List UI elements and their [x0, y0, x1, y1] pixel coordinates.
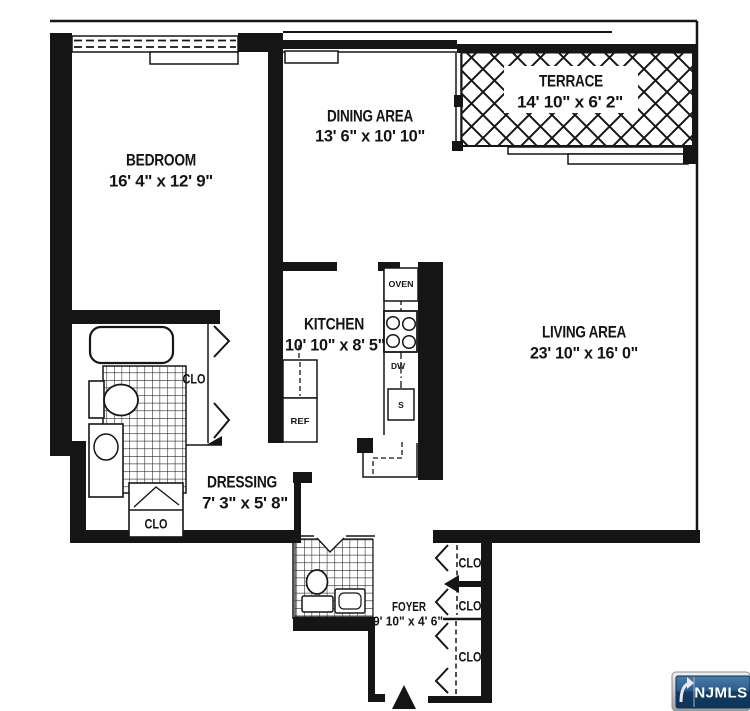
toilet-bowl	[307, 570, 328, 594]
powder-room	[293, 536, 375, 619]
oven-label: OVEN	[389, 279, 414, 289]
living-window-sill2	[568, 154, 688, 164]
wall-terrace-west-block	[454, 95, 463, 107]
wall-foyer-closet-east	[481, 530, 492, 703]
wall-kitchen-west	[268, 33, 283, 443]
dishwasher-label: DW	[391, 361, 406, 371]
kitchen-dims: 10' 10" x 8' 5"	[285, 336, 385, 355]
wall-bedroom-south	[63, 310, 220, 324]
bedroom-label: BEDROOM	[126, 151, 196, 170]
bedroom-convector	[150, 52, 238, 64]
kitchen-label: KITCHEN	[304, 315, 364, 334]
dressing-dims: 7' 3" x 5' 8"	[202, 494, 288, 513]
njmls-badge: NJMLS	[672, 672, 750, 711]
closet-divider-bar	[456, 581, 481, 587]
bedroom-closet-label: CLO	[183, 372, 206, 387]
wall-dining-north	[283, 40, 457, 49]
wall-foyer-south	[428, 696, 488, 703]
wall-terrace-north	[457, 44, 697, 53]
wall-stub-kitchen-sw	[293, 472, 312, 483]
window-frame	[72, 36, 238, 52]
foyer-dims: 9' 10" x 4' 6"	[373, 614, 443, 629]
terrace-label: TERRACE	[539, 72, 603, 91]
refrigerator-label: REF	[291, 416, 310, 426]
foyer-closet2-label: CLO	[459, 599, 482, 614]
badge-label: NJMLS	[694, 685, 747, 702]
wall-dressing-east	[294, 483, 301, 540]
dressing-label: DRESSING	[207, 473, 277, 492]
wall-foyer-west-stub	[368, 694, 385, 702]
wall-powder-south	[293, 617, 375, 631]
living-label: LIVING AREA	[542, 323, 626, 342]
wall-dressing-south	[70, 530, 301, 543]
dining-dims: 13' 6" x 10' 10"	[315, 127, 425, 146]
floor-plan: BEDROOM 16' 4" x 12' 9" DINING AREA 13' …	[0, 0, 750, 711]
toilet-tank	[302, 596, 333, 612]
toilet-bowl	[104, 385, 138, 416]
sink-label: S	[398, 400, 404, 410]
bedroom-dims: 16' 4" x 12' 9"	[109, 172, 213, 191]
dining-label: DINING AREA	[327, 107, 413, 126]
foyer-label: FOYER	[392, 600, 426, 614]
wall-living-south	[433, 530, 700, 543]
floor-plan-page: BEDROOM 16' 4" x 12' 9" DINING AREA 13' …	[0, 0, 750, 711]
bathtub	[90, 327, 173, 363]
wall-kitchen-pier	[357, 438, 373, 453]
terrace-dims: 14' 10" x 6' 2"	[517, 93, 623, 112]
foyer-closet1-label: CLO	[459, 556, 482, 571]
wall-west-step	[50, 441, 86, 456]
wall-kitchen-east-pillar	[418, 262, 443, 480]
sink-basin	[94, 434, 118, 460]
toilet-tank	[89, 381, 104, 418]
wall-kitchen-north-left	[283, 262, 337, 271]
wall-foyer-west	[368, 631, 375, 698]
foyer-closet3-label: CLO	[459, 650, 482, 665]
wall-west-lower	[70, 455, 86, 543]
dining-convector	[285, 51, 338, 63]
wall-window-band-block	[683, 146, 698, 164]
dressing-closet-label: CLO	[145, 517, 168, 532]
wall-west	[50, 33, 72, 455]
wall-terrace-west-foot	[452, 141, 463, 151]
powder-sink-basin	[339, 593, 361, 609]
wall-terrace-east	[692, 44, 698, 146]
bathroom	[89, 327, 186, 497]
living-window-sill	[508, 147, 687, 154]
living-dims: 23' 10" x 16' 0"	[530, 344, 638, 363]
